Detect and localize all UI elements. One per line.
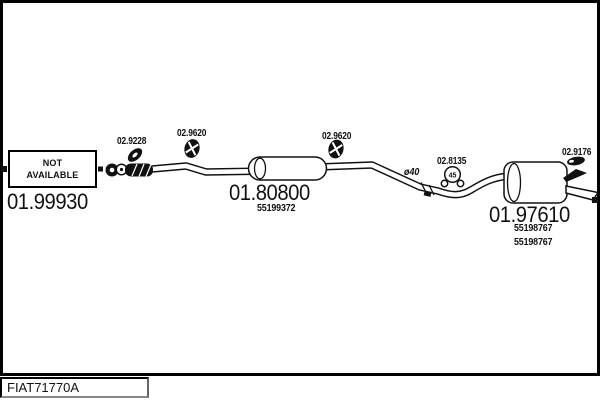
drawing-code: FIAT71770A	[7, 380, 79, 395]
parts-diagram-page: 45 NOT AVAILABLE 01.99930 02.9228 02.962…	[0, 0, 600, 400]
not-available-box: NOT AVAILABLE	[8, 150, 97, 188]
gasket-icon	[125, 146, 144, 165]
not-available-line2: AVAILABLE	[27, 169, 79, 181]
tailpipe	[566, 186, 598, 203]
clamp-size-label: 45	[449, 173, 457, 180]
centre-muffler-shape	[249, 157, 327, 180]
front-flange-icon	[106, 164, 127, 177]
part-code-tail-trim[interactable]: 02.9176	[562, 146, 591, 158]
connector-square-mid	[98, 167, 103, 172]
connector-square-left	[1, 166, 7, 172]
part-code-gasket[interactable]: 02.9228	[117, 135, 146, 147]
flex-pipe-section	[125, 164, 153, 177]
part-code-hanger-front[interactable]: 02.9620	[177, 127, 206, 139]
pipe-diameter-label: ø40	[404, 166, 419, 178]
connector-square-right	[592, 197, 598, 203]
part-code-hanger-mid[interactable]: 02.9620	[322, 130, 351, 142]
part-number-rear-muffler-2: 55198767	[514, 236, 552, 248]
clamp-icon: 45	[441, 167, 463, 187]
rear-muffler-shape	[504, 162, 587, 203]
drawing-code-box: FIAT71770A	[0, 377, 149, 398]
part-code-clamp[interactable]: 02.8135	[437, 155, 466, 167]
not-available-line1: NOT	[43, 157, 63, 169]
part-code-front-section[interactable]: 01.99930	[7, 189, 88, 215]
rubber-hanger-icon-front	[182, 137, 201, 159]
part-number-centre-muffler: 55199372	[257, 202, 295, 214]
part-number-rear-muffler-1: 55198767	[514, 222, 552, 234]
